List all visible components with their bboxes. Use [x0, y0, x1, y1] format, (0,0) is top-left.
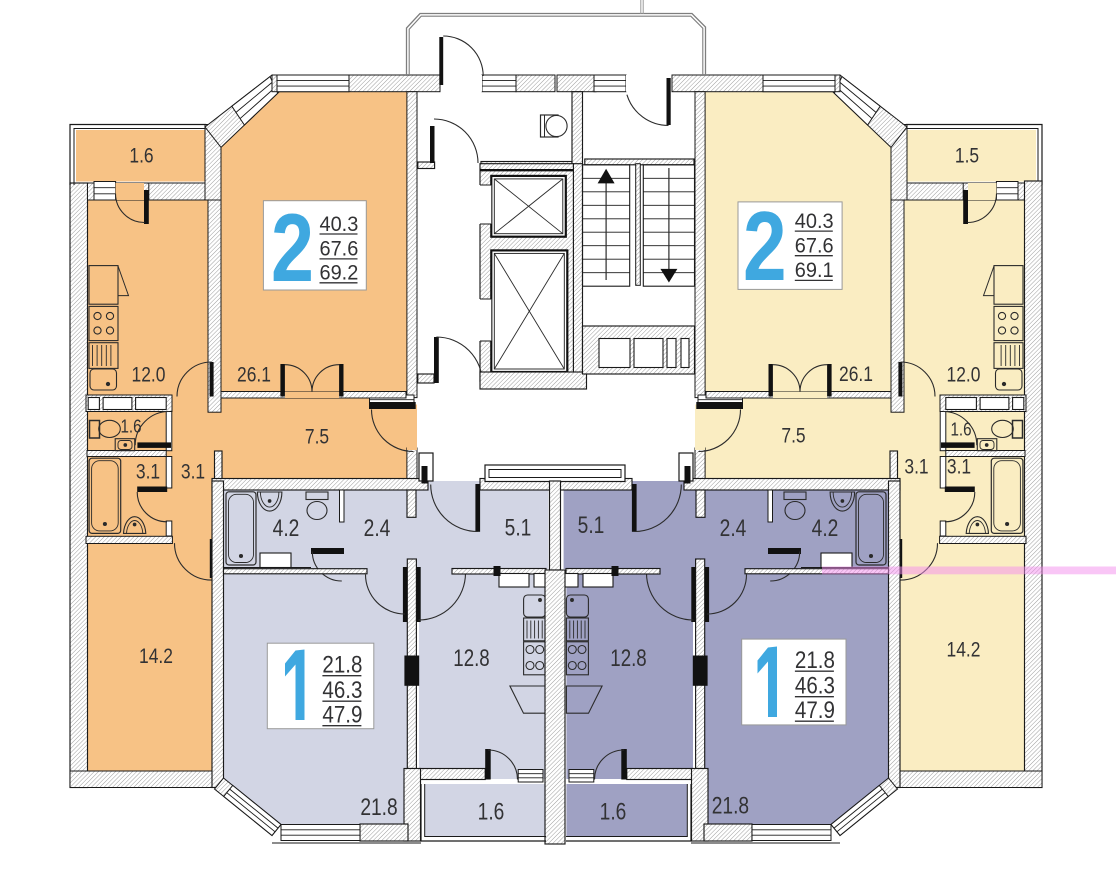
svg-text:1.6: 1.6: [129, 144, 153, 168]
svg-text:21.8: 21.8: [360, 793, 397, 821]
svg-text:5.1: 5.1: [505, 513, 532, 541]
svg-text:14.2: 14.2: [139, 644, 173, 668]
svg-text:21.8: 21.8: [795, 646, 835, 673]
svg-text:1.5: 1.5: [955, 144, 979, 168]
svg-text:46.3: 46.3: [322, 676, 362, 703]
svg-text:40.3: 40.3: [795, 209, 834, 233]
svg-text:12.8: 12.8: [610, 645, 646, 672]
svg-text:3.1: 3.1: [947, 455, 971, 479]
svg-text:69.2: 69.2: [320, 261, 359, 285]
svg-text:26.1: 26.1: [839, 362, 873, 386]
svg-text:12.8: 12.8: [453, 645, 489, 672]
svg-text:12.0: 12.0: [947, 363, 981, 387]
svg-text:3.1: 3.1: [904, 455, 928, 479]
svg-text:2: 2: [271, 194, 314, 302]
svg-text:4.2: 4.2: [273, 514, 300, 542]
svg-text:67.6: 67.6: [320, 237, 359, 261]
svg-text:47.9: 47.9: [795, 696, 835, 723]
svg-text:47.9: 47.9: [322, 701, 362, 728]
svg-text:2.4: 2.4: [720, 514, 747, 542]
svg-text:4.2: 4.2: [812, 514, 839, 542]
svg-text:67.6: 67.6: [795, 234, 834, 258]
svg-text:12.0: 12.0: [132, 363, 166, 387]
svg-text:1.6: 1.6: [600, 797, 627, 825]
svg-text:26.1: 26.1: [237, 363, 271, 387]
svg-text:7.5: 7.5: [305, 425, 329, 449]
svg-text:40.3: 40.3: [320, 212, 359, 236]
svg-text:3.1: 3.1: [136, 460, 160, 484]
svg-text:14.2: 14.2: [947, 638, 981, 662]
svg-text:69.1: 69.1: [795, 259, 834, 283]
svg-text:1.6: 1.6: [120, 416, 141, 437]
svg-text:2: 2: [743, 192, 787, 301]
svg-text:21.8: 21.8: [712, 791, 749, 819]
svg-text:46.3: 46.3: [795, 672, 835, 699]
svg-text:7.5: 7.5: [781, 424, 805, 448]
svg-text:21.8: 21.8: [322, 651, 362, 678]
svg-text:5.1: 5.1: [578, 511, 605, 539]
svg-text:1.6: 1.6: [950, 419, 971, 440]
svg-text:2.4: 2.4: [364, 514, 391, 542]
svg-text:3.1: 3.1: [181, 460, 205, 484]
svg-text:1.6: 1.6: [478, 797, 505, 825]
